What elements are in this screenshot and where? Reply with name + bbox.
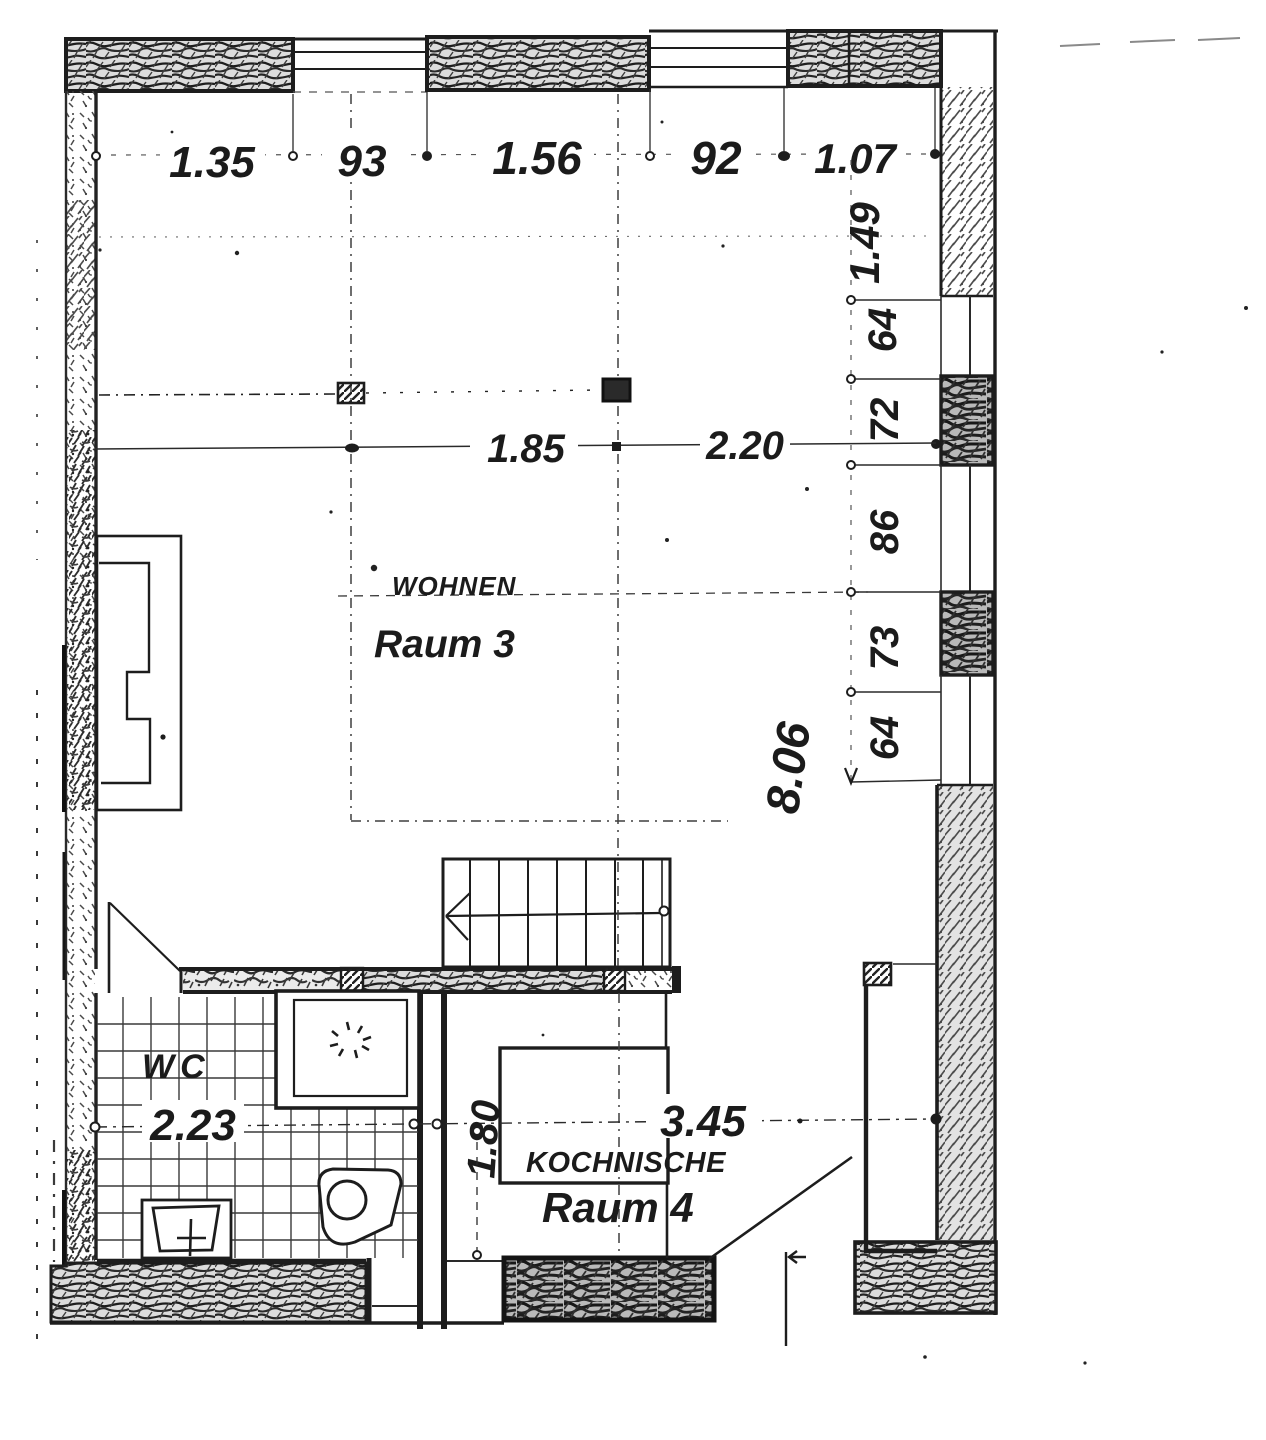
svg-text:1.80: 1.80	[459, 1099, 508, 1180]
svg-text:72: 72	[863, 398, 907, 443]
svg-text:WOHNEN: WOHNEN	[392, 571, 517, 601]
svg-text:1.56: 1.56	[492, 132, 582, 184]
svg-text:86: 86	[863, 509, 907, 554]
svg-text:93: 93	[338, 137, 387, 186]
svg-text:2.23: 2.23	[149, 1101, 236, 1150]
svg-text:WC: WC	[142, 1048, 211, 1086]
svg-text:73: 73	[863, 626, 907, 671]
svg-text:1.85: 1.85	[487, 427, 566, 471]
svg-text:3.45: 3.45	[660, 1097, 746, 1146]
svg-text:Raum 3: Raum 3	[374, 623, 515, 666]
svg-text:64: 64	[863, 716, 907, 761]
svg-text:1.49: 1.49	[841, 201, 888, 283]
svg-text:92: 92	[690, 132, 742, 184]
svg-text:2.20: 2.20	[705, 424, 784, 468]
svg-text:Raum 4: Raum 4	[542, 1184, 694, 1231]
svg-text:KOCHNISCHE: KOCHNISCHE	[526, 1147, 727, 1179]
svg-text:1.07: 1.07	[814, 135, 897, 182]
svg-text:64: 64	[861, 308, 905, 353]
svg-text:1.35: 1.35	[169, 138, 255, 187]
